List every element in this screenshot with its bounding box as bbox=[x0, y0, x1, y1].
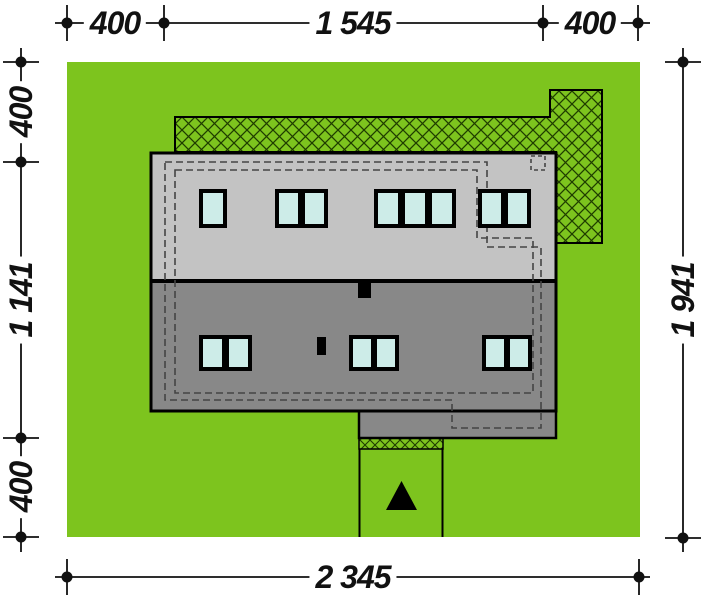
roof-window bbox=[227, 337, 250, 369]
dim-label-top-house-width: 1 545 bbox=[309, 7, 396, 39]
dim-label-bottom-plot-width: 2 345 bbox=[309, 561, 396, 593]
dim-label-left-setback-top: 400 bbox=[5, 81, 37, 143]
roof-window bbox=[430, 191, 454, 226]
roof-window bbox=[303, 191, 326, 226]
roof-window bbox=[376, 191, 400, 226]
dimension-marker bbox=[678, 533, 689, 544]
dimension-marker bbox=[678, 57, 689, 68]
dimension-marker bbox=[538, 18, 549, 29]
roof-window bbox=[484, 337, 506, 369]
roof-window bbox=[375, 337, 397, 369]
roof-window bbox=[403, 191, 427, 226]
dimension-marker bbox=[16, 433, 27, 444]
dim-label-top-setback-right: 400 bbox=[559, 7, 621, 39]
dimension-marker bbox=[159, 18, 170, 29]
dim-label-left-house-depth: 1 141 bbox=[5, 256, 37, 343]
roof-window bbox=[277, 191, 300, 226]
roof-window bbox=[201, 337, 224, 369]
dimension-marker bbox=[16, 57, 27, 68]
dimension-marker bbox=[633, 18, 644, 29]
dimension-marker bbox=[62, 572, 73, 583]
roof-extension bbox=[359, 411, 556, 438]
roof-window bbox=[201, 191, 225, 226]
chimney bbox=[358, 281, 371, 298]
roof-window bbox=[480, 191, 503, 226]
roof-vent bbox=[317, 337, 326, 355]
roof-window bbox=[506, 191, 529, 226]
site-plan-drawing bbox=[0, 0, 707, 600]
dimension-marker bbox=[16, 532, 27, 543]
dim-label-right-plot-depth: 1 941 bbox=[667, 256, 699, 343]
dimension-marker bbox=[62, 18, 73, 29]
driveway-hatched-strip bbox=[359, 438, 443, 449]
dimension-marker bbox=[16, 157, 27, 168]
roof-window bbox=[351, 337, 373, 369]
dim-label-top-setback-left: 400 bbox=[84, 7, 146, 39]
roof-window bbox=[508, 337, 530, 369]
dim-label-left-setback-bottom: 400 bbox=[5, 456, 37, 518]
dimension-marker bbox=[634, 572, 645, 583]
site-plan: 400 1 545 400 400 1 141 400 1 941 2 345 bbox=[0, 0, 707, 600]
